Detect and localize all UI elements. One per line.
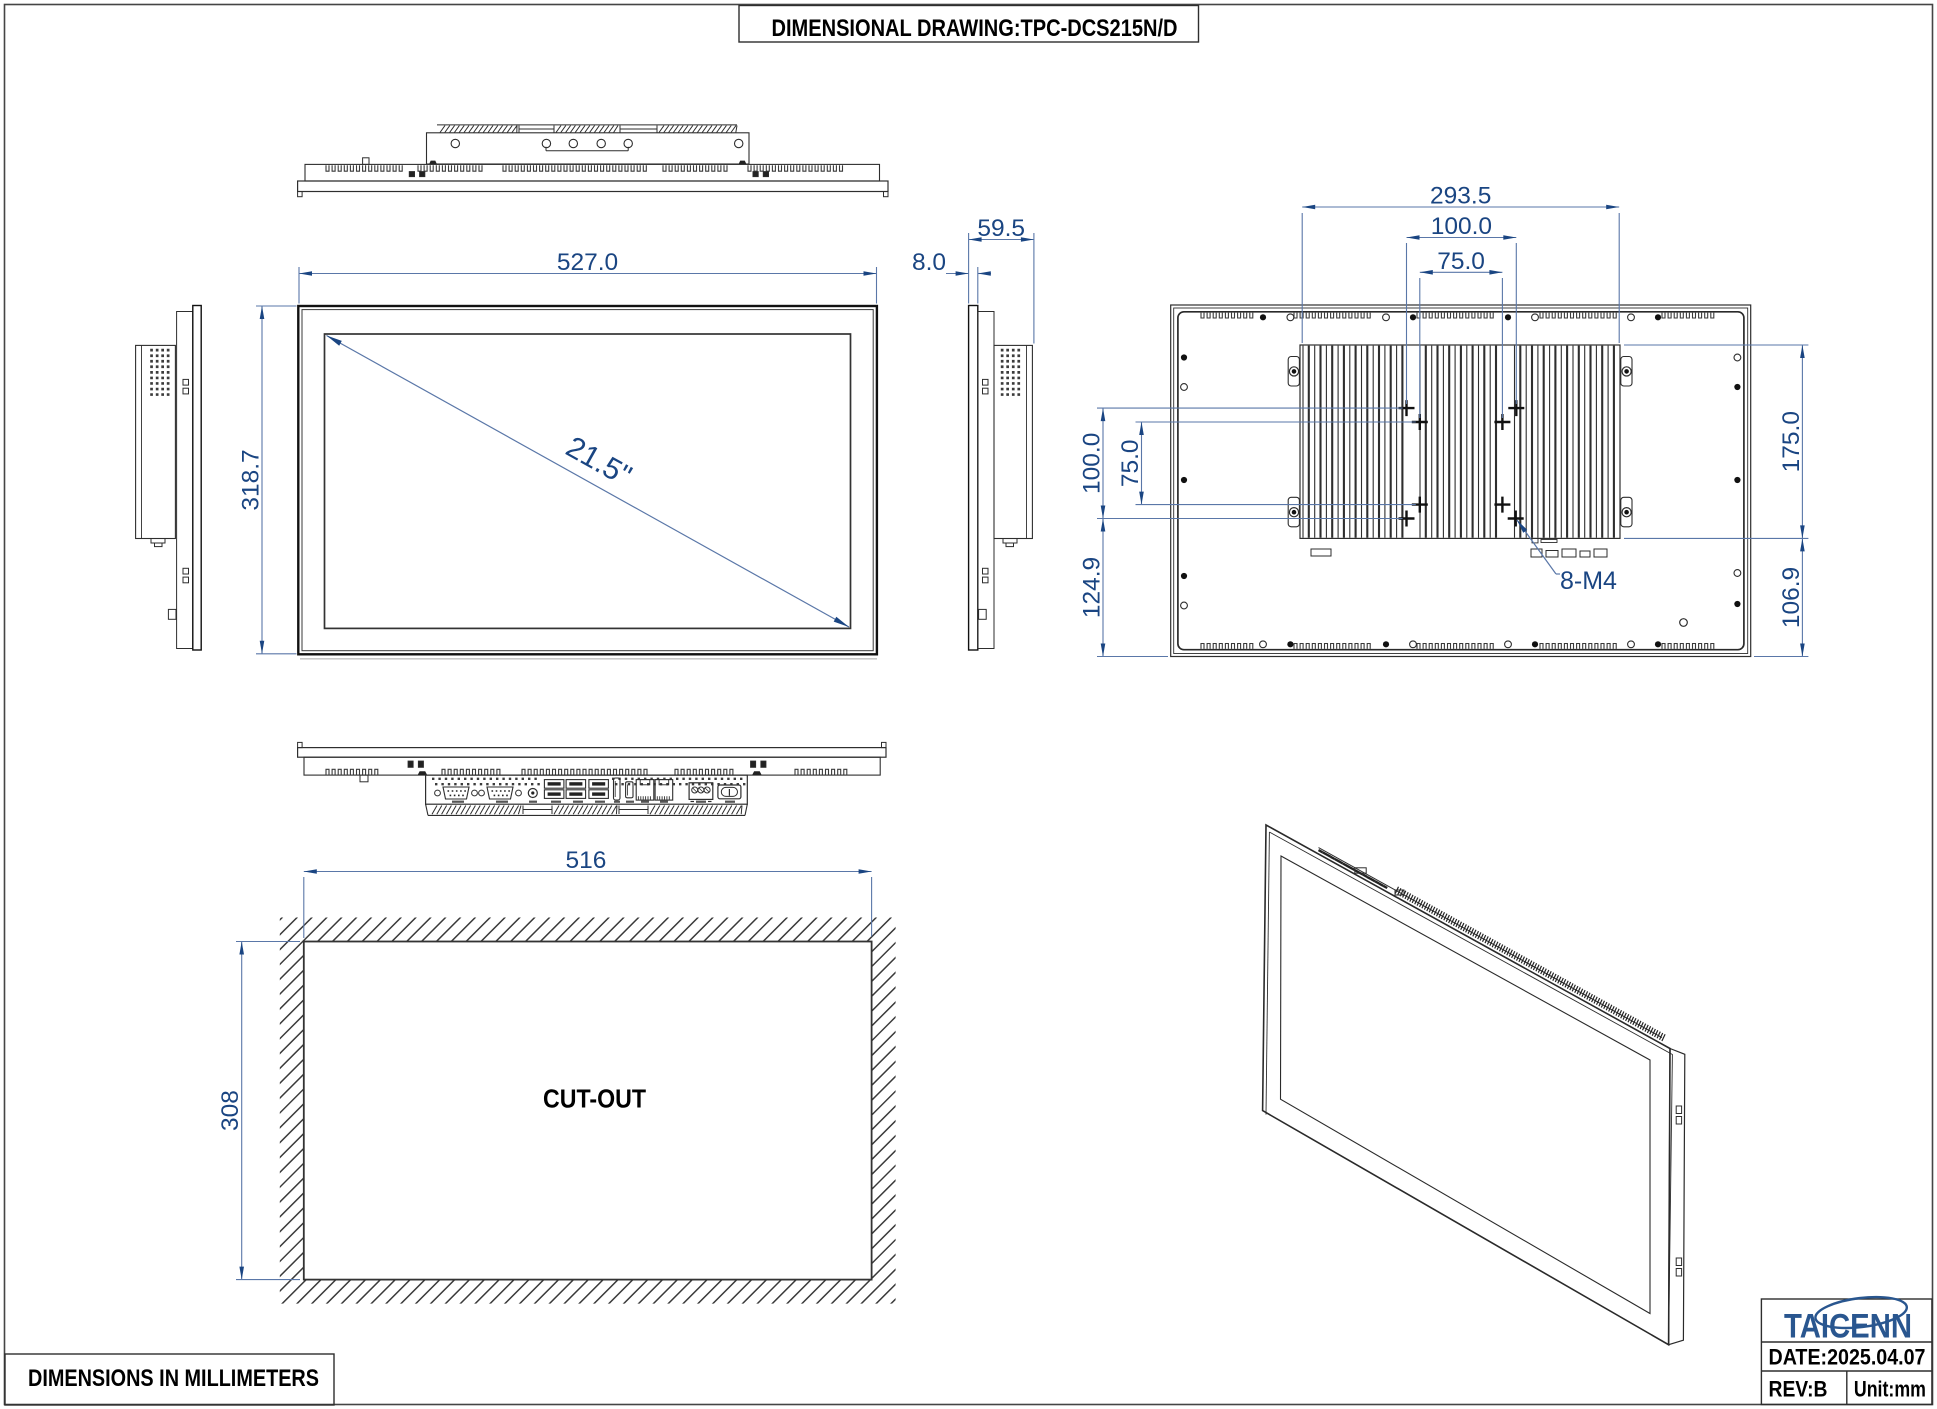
svg-text:100.0: 100.0 bbox=[1079, 433, 1106, 494]
svg-text:106.9: 106.9 bbox=[1778, 567, 1805, 628]
svg-text:8.0: 8.0 bbox=[912, 249, 946, 276]
svg-text:318.7: 318.7 bbox=[238, 449, 265, 510]
svg-text:75.0: 75.0 bbox=[1437, 248, 1485, 275]
svg-text:TAICENN: TAICENN bbox=[1784, 1308, 1912, 1346]
svg-text:100.0: 100.0 bbox=[1431, 213, 1492, 240]
svg-text:175.0: 175.0 bbox=[1778, 411, 1805, 472]
svg-text:Unit:mm: Unit:mm bbox=[1854, 1377, 1926, 1402]
svg-text:516: 516 bbox=[566, 847, 607, 874]
svg-text:308: 308 bbox=[217, 1090, 244, 1131]
svg-text:124.9: 124.9 bbox=[1079, 557, 1106, 618]
svg-text:DIMENSIONAL DRAWING:TPC-DCS215: DIMENSIONAL DRAWING:TPC-DCS215N/D bbox=[772, 15, 1178, 42]
svg-text:59.5: 59.5 bbox=[977, 215, 1025, 242]
svg-text:REV:B: REV:B bbox=[1769, 1377, 1828, 1402]
svg-text:DATE:2025.04.07: DATE:2025.04.07 bbox=[1769, 1345, 1926, 1370]
svg-text:75.0: 75.0 bbox=[1117, 439, 1144, 487]
svg-text:293.5: 293.5 bbox=[1430, 183, 1491, 210]
svg-text:527.0: 527.0 bbox=[557, 249, 618, 276]
svg-text:CUT-OUT: CUT-OUT bbox=[543, 1084, 646, 1114]
svg-text:8-M4: 8-M4 bbox=[1560, 567, 1617, 595]
svg-text:DIMENSIONS IN MILLIMETERS: DIMENSIONS IN MILLIMETERS bbox=[28, 1365, 319, 1392]
